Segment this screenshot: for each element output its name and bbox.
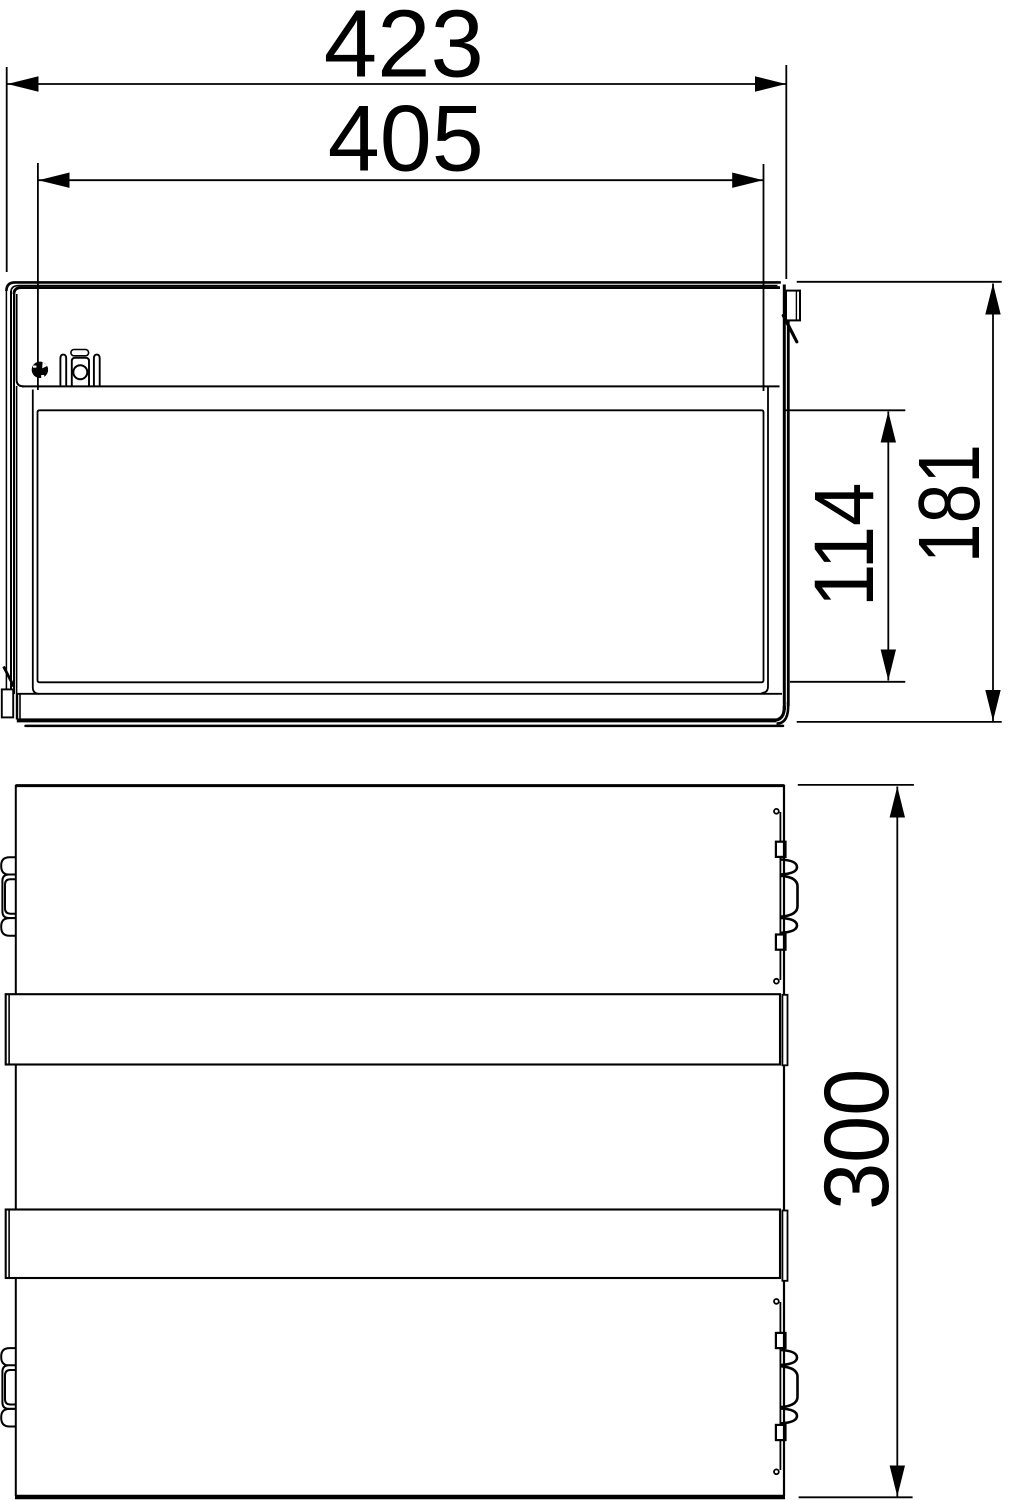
svg-text:114: 114 <box>798 483 891 608</box>
svg-text:423: 423 <box>324 0 484 98</box>
svg-text:405: 405 <box>328 86 484 191</box>
svg-text:181: 181 <box>900 444 997 563</box>
svg-text:300: 300 <box>805 1069 908 1210</box>
